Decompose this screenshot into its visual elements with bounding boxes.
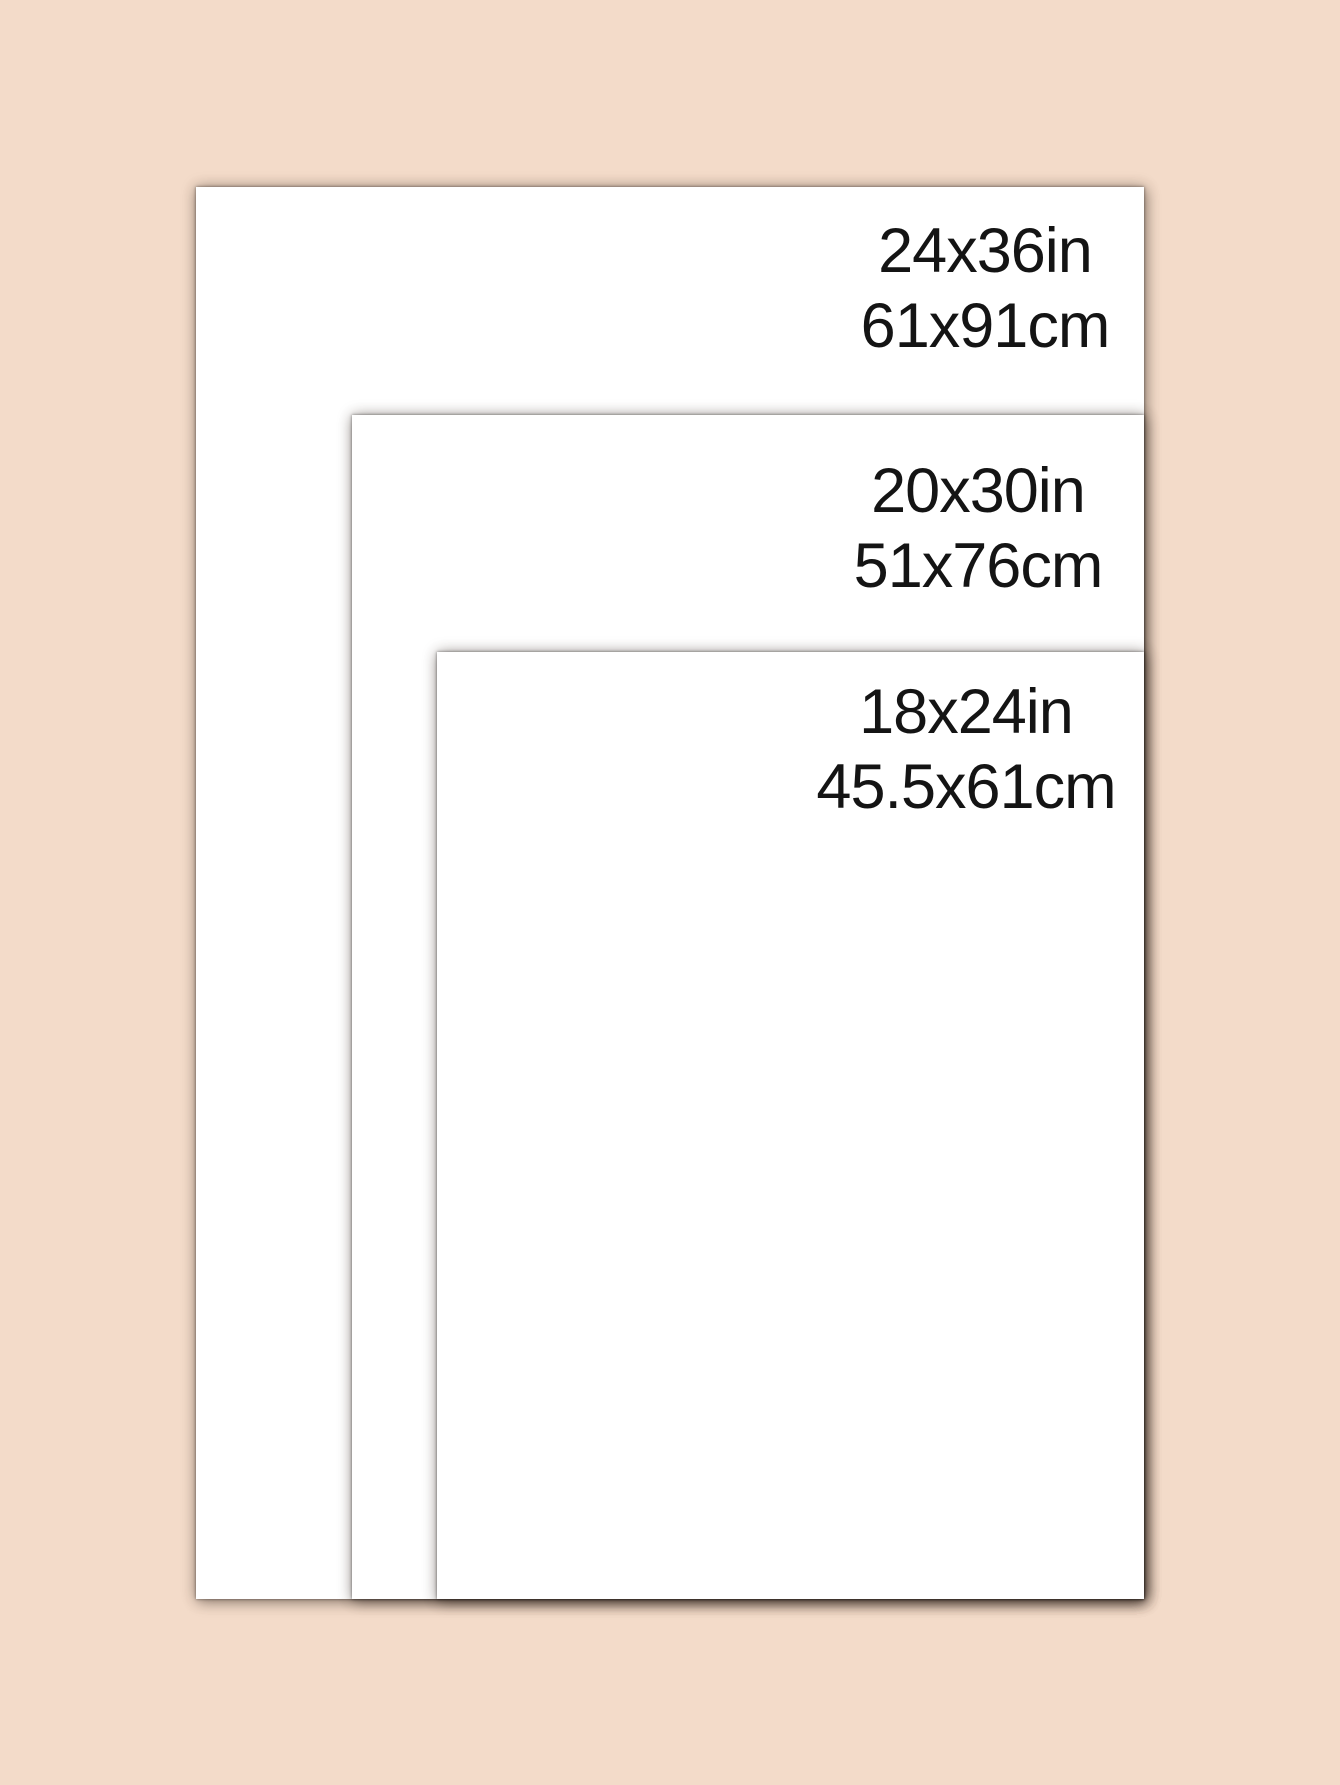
size-centimeters-18x24: 45.5x61cm [816, 750, 1115, 825]
size-label-18x24: 18x24in 45.5x61cm [816, 675, 1115, 825]
size-label-24x36: 24x36in 61x91cm [861, 214, 1110, 364]
size-inches-18x24: 18x24in [816, 675, 1115, 750]
size-centimeters-24x36: 61x91cm [861, 289, 1110, 364]
size-guide-background: 24x36in 61x91cm 20x30in 51x76cm 18x24in … [0, 0, 1340, 1785]
size-label-20x30: 20x30in 51x76cm [854, 454, 1103, 604]
sheet-18x24: 18x24in 45.5x61cm [437, 652, 1144, 1599]
size-inches-24x36: 24x36in [861, 214, 1110, 289]
size-inches-20x30: 20x30in [854, 454, 1103, 529]
size-centimeters-20x30: 51x76cm [854, 529, 1103, 604]
